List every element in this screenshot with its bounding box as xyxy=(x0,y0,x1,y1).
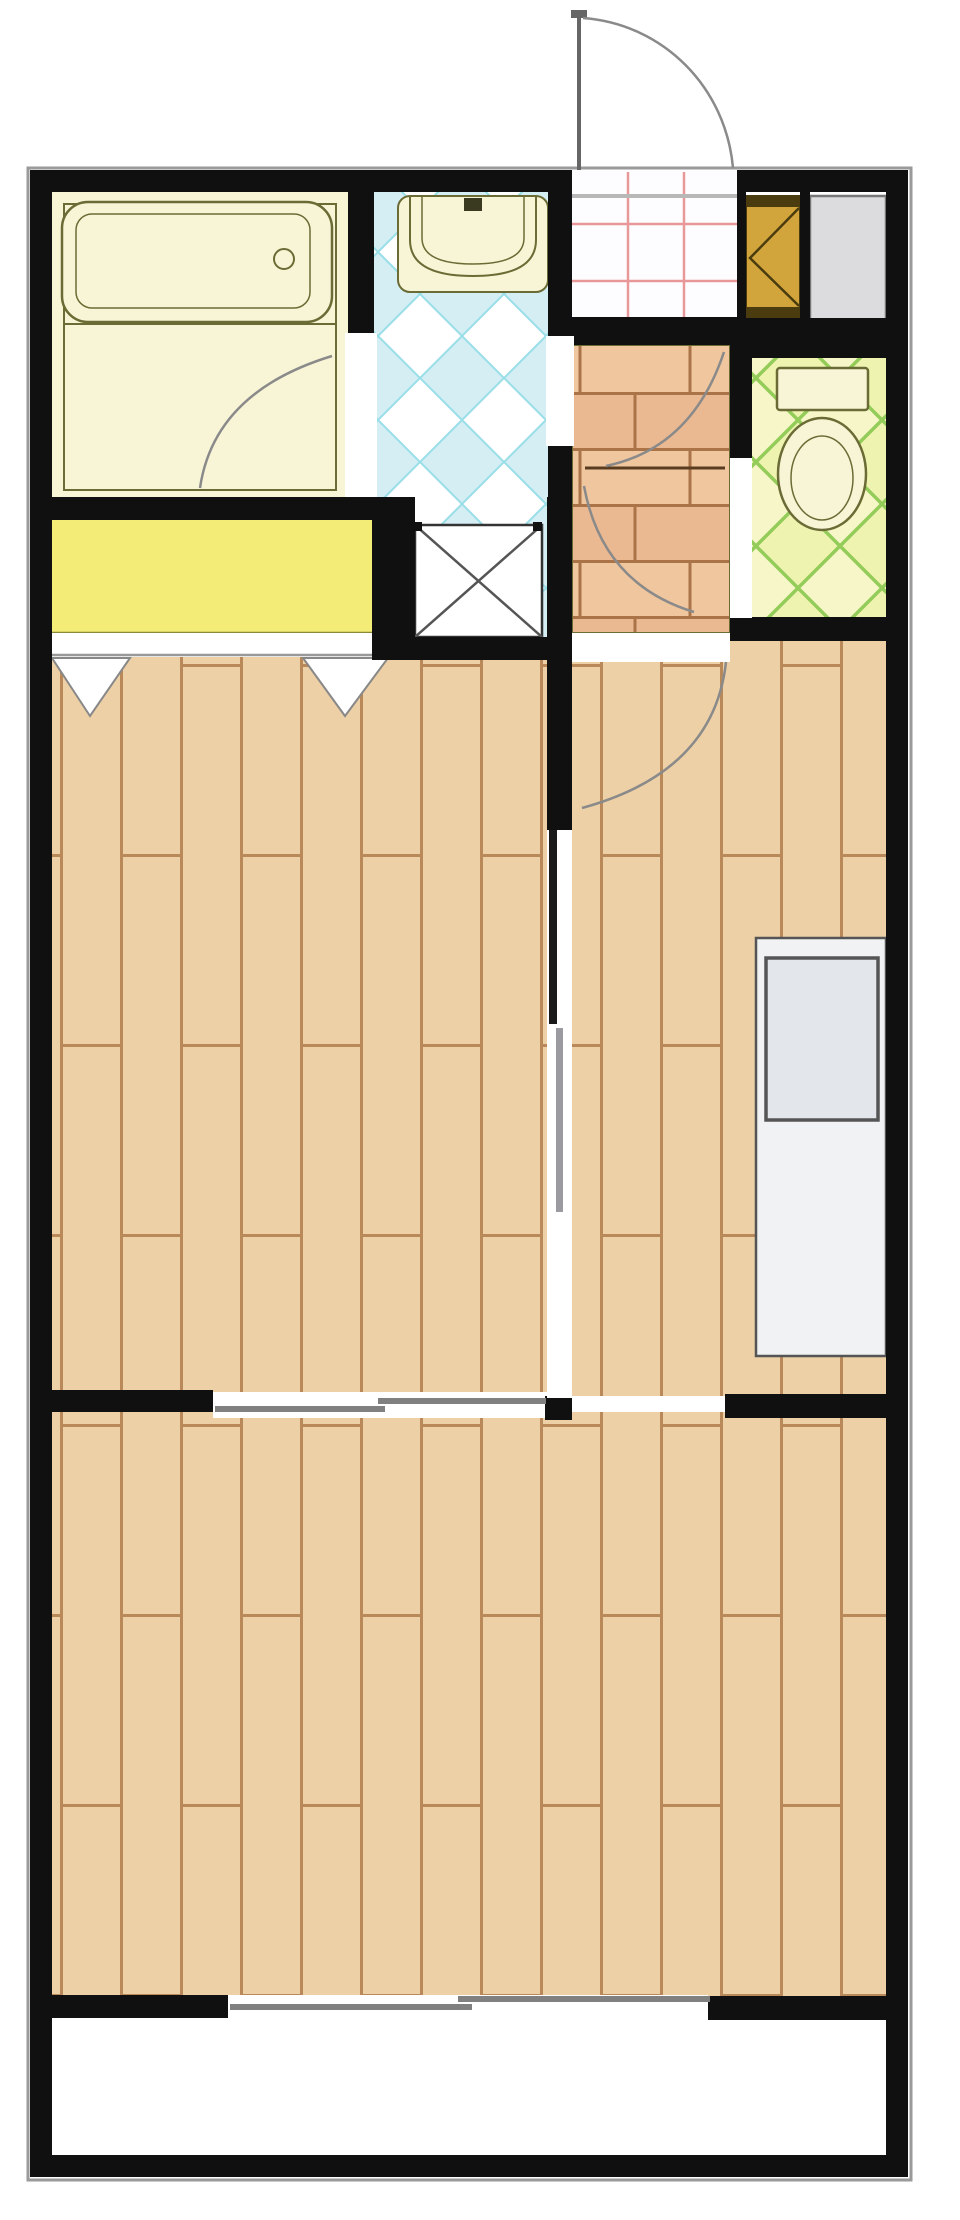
faucet-icon xyxy=(464,198,482,211)
bathroom xyxy=(52,192,348,520)
storage-unit xyxy=(810,196,886,338)
shoe-cabinet xyxy=(746,196,800,318)
toilet-door-opening xyxy=(730,458,752,618)
toilet-room xyxy=(752,358,886,617)
balcony-sliding-window xyxy=(228,1995,710,2020)
vanity-sink xyxy=(398,196,548,292)
kitchen-sink xyxy=(766,958,878,1120)
kitchen-counter-sink xyxy=(756,938,886,1356)
west-room-floor xyxy=(52,655,547,1392)
room-partition xyxy=(547,830,572,1398)
toilet xyxy=(777,368,868,530)
balcony-floor xyxy=(52,2018,886,2158)
yellow-counter-closet xyxy=(50,518,388,633)
hallway xyxy=(572,345,730,633)
washer-pan-x-box xyxy=(413,522,542,637)
bathtub xyxy=(62,202,332,322)
floor-plan-page xyxy=(0,0,960,2220)
entrance-genkan xyxy=(572,170,737,317)
south-room-floor xyxy=(52,1412,886,1997)
floor-plan-drawing xyxy=(0,0,960,2220)
room-divider-sliding-door xyxy=(213,1392,546,1418)
